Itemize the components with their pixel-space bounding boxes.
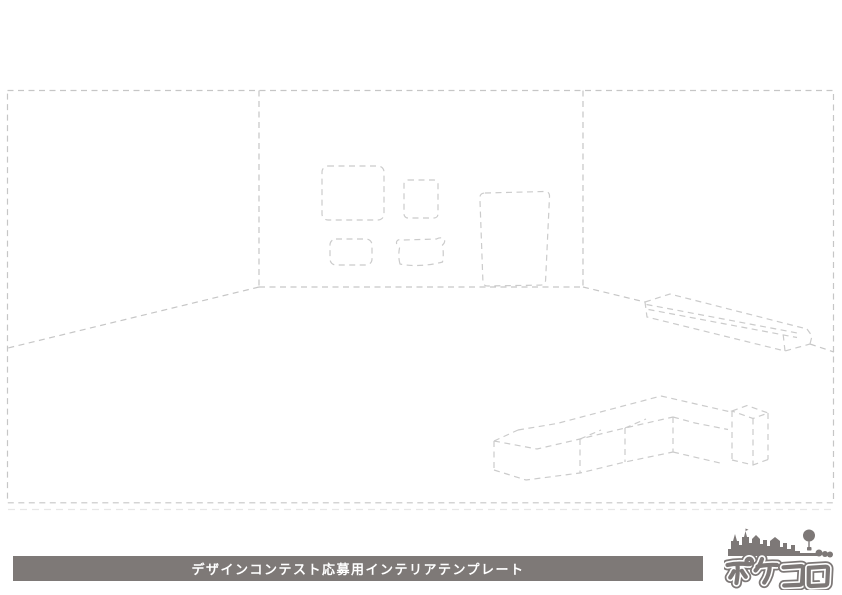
template-page: デザインコンテスト応募用インテリアテンプレート ポケコロ bbox=[0, 0, 842, 595]
wall-frame-small bbox=[330, 239, 372, 265]
city-skyline-icon bbox=[728, 529, 833, 558]
hot-air-balloon-icon bbox=[803, 530, 815, 551]
letter-ko bbox=[784, 566, 804, 585]
bushes-icon bbox=[816, 550, 834, 558]
back-wall bbox=[259, 91, 583, 288]
title-banner: デザインコンテスト応募用インテリアテンプレート bbox=[13, 556, 703, 581]
right-wall-floor-line bbox=[583, 287, 834, 352]
wall-frame-large bbox=[322, 166, 384, 220]
interior-template-drawing bbox=[0, 0, 842, 595]
pokecolo-wordmark bbox=[728, 559, 829, 586]
wall-shelf bbox=[645, 294, 812, 351]
l-shaped-sofa bbox=[494, 396, 731, 480]
letter-ro bbox=[809, 567, 828, 586]
castle-flag-icon bbox=[746, 529, 749, 532]
wall-frame-square bbox=[404, 180, 438, 218]
letter-ke bbox=[756, 559, 778, 583]
title-banner-label: デザインコンテスト応募用インテリアテンプレート bbox=[191, 559, 524, 578]
pokecolo-logo-graphic bbox=[724, 528, 836, 590]
room-outline bbox=[8, 91, 834, 503]
wall-frame-ornate bbox=[396, 238, 444, 266]
pokecolo-logo: ポケコロ bbox=[724, 528, 836, 590]
wall-door bbox=[480, 191, 550, 286]
left-wall-floor-line bbox=[8, 287, 259, 348]
sofa-armrest-box bbox=[732, 406, 768, 466]
letter-po bbox=[728, 559, 752, 583]
letter-ro-dot bbox=[820, 578, 825, 583]
